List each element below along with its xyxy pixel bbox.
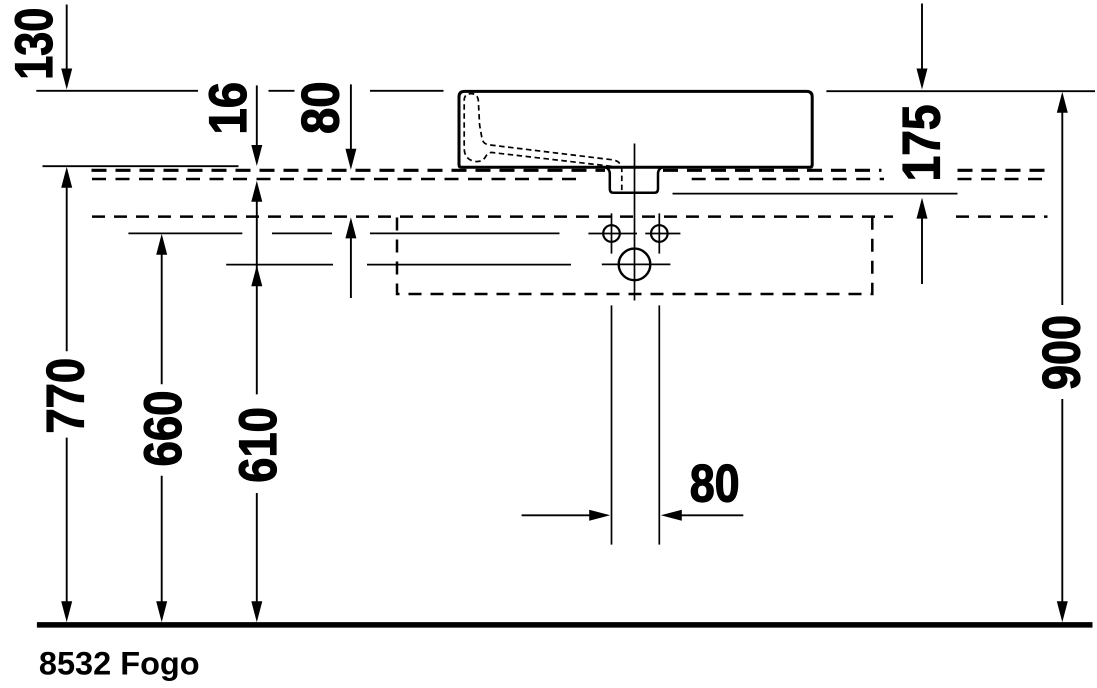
svg-text:900: 900 bbox=[1033, 315, 1092, 390]
svg-text:80: 80 bbox=[690, 455, 740, 514]
svg-text:660: 660 bbox=[134, 391, 193, 467]
svg-text:770: 770 bbox=[37, 358, 96, 434]
svg-text:175: 175 bbox=[893, 104, 952, 181]
svg-text:130: 130 bbox=[5, 8, 64, 80]
svg-text:8532 Fogo: 8532 Fogo bbox=[39, 646, 200, 682]
svg-text:610: 610 bbox=[229, 407, 288, 483]
svg-text:80: 80 bbox=[292, 82, 351, 135]
svg-text:16: 16 bbox=[199, 82, 258, 135]
